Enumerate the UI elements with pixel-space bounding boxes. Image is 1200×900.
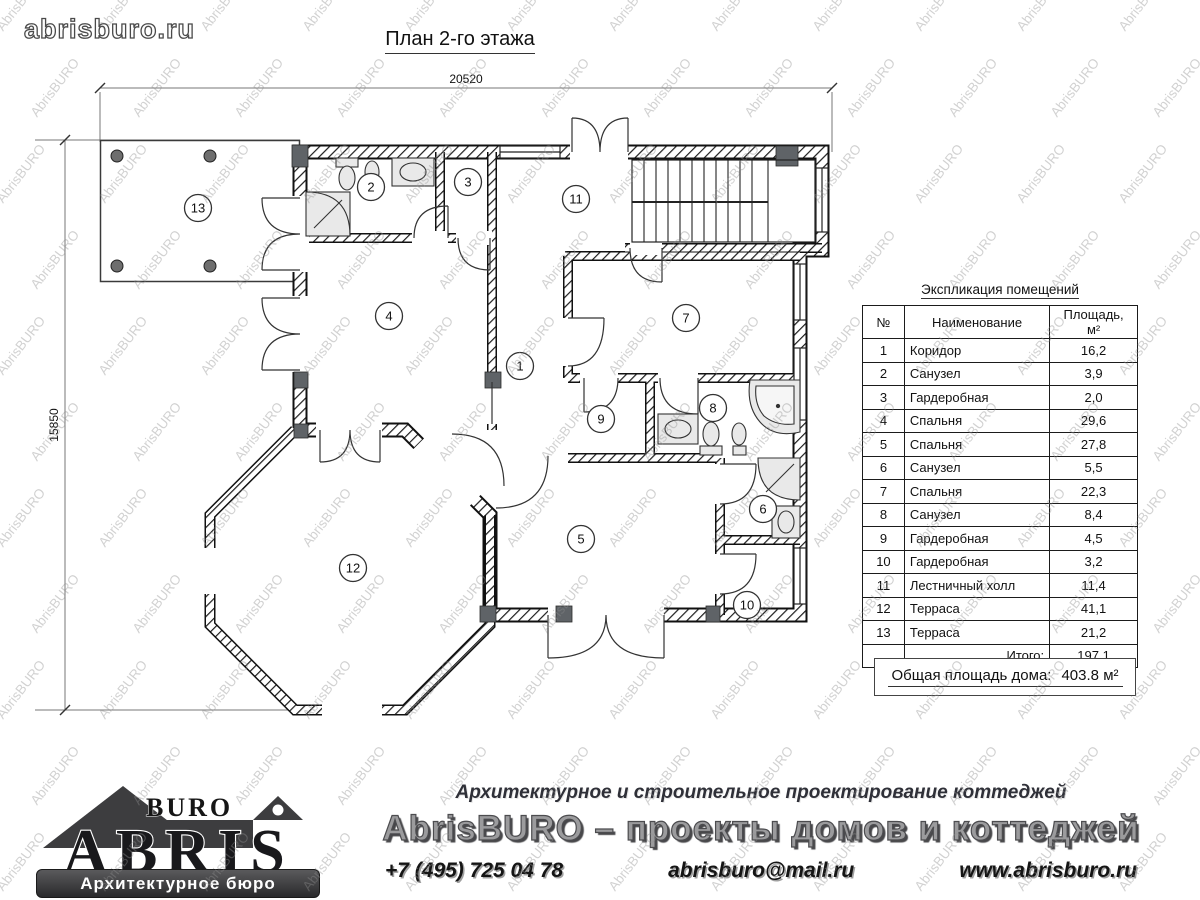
table-row: 5Спальня27,8 — [863, 433, 1138, 457]
shower-icon-room2 — [306, 192, 350, 236]
svg-text:8: 8 — [709, 401, 716, 416]
room-label-6: 6 — [750, 496, 777, 523]
svg-text:3: 3 — [464, 175, 471, 190]
explication-title: Экспликация помещений — [862, 282, 1138, 297]
svg-text:7: 7 — [682, 311, 689, 326]
svg-text:2: 2 — [367, 180, 374, 195]
svg-text:11: 11 — [569, 192, 583, 207]
table-row: 3Гардеробная2,0 — [863, 386, 1138, 410]
page-title: План 2-го этажа — [310, 28, 610, 54]
explication-panel: Экспликация помещений № Наименование Пло… — [862, 282, 1138, 668]
room-label-1: 1 — [507, 353, 534, 380]
col-header-name: Наименование — [904, 306, 1049, 339]
svg-text:5: 5 — [577, 532, 584, 547]
logo-banner: Архитектурное бюро — [36, 869, 320, 898]
room-label-3: 3 — [455, 169, 482, 196]
explication-table: № Наименование Площадь, м² 1Коридор16,22… — [862, 305, 1138, 668]
stairs — [632, 160, 815, 242]
site-logo-text[interactable]: abrisburo.ru — [24, 14, 195, 45]
footer-tagline: Архитектурное и строительное проектирова… — [456, 782, 1067, 804]
room-label-7: 7 — [673, 305, 700, 332]
table-header-row: № Наименование Площадь, м² — [863, 306, 1138, 339]
svg-text:13: 13 — [191, 201, 205, 216]
interior-walls — [300, 152, 822, 615]
room-label-12: 12 — [340, 555, 367, 582]
table-row: 9Гардеробная4,5 — [863, 527, 1138, 551]
col-header-area: Площадь, м² — [1050, 306, 1138, 339]
svg-text:10: 10 — [740, 598, 754, 613]
bidet-icon-room8 — [732, 423, 746, 455]
room-label-11: 11 — [563, 186, 590, 213]
table-row: 4Спальня29,6 — [863, 409, 1138, 433]
svg-text:12: 12 — [346, 561, 360, 576]
table-row: 2Санузел3,9 — [863, 362, 1138, 386]
room-label-4: 4 — [376, 303, 403, 330]
footer-text: Архитектурное и строительное проектирова… — [330, 782, 1192, 883]
shower-icon-room6 — [758, 458, 800, 500]
svg-text:6: 6 — [759, 502, 766, 517]
sink-icon-room8 — [658, 414, 698, 444]
logo-name-text: ABRIS — [63, 818, 293, 876]
footer-website[interactable]: www.abrisburo.ru — [959, 859, 1137, 883]
dimension-height-label: 15850 — [47, 408, 61, 442]
room-label-2: 2 — [358, 174, 385, 201]
table-row: 13Терраса21,2 — [863, 621, 1138, 645]
footer-email[interactable]: abrisburo@mail.ru — [668, 859, 854, 883]
col-header-num: № — [863, 306, 905, 339]
page: abrisburo.ru План 2-го этажа 20520 15850 — [0, 0, 1200, 900]
footer-headline: AbrisBURO – проекты домов и коттеджей — [382, 809, 1139, 849]
company-logo[interactable]: BURO ABRIS Архитектурное бюро — [28, 780, 328, 898]
table-row: 7Спальня22,3 — [863, 480, 1138, 504]
sink-icon-room2 — [392, 158, 434, 186]
toilet-icon-room2 — [336, 158, 358, 190]
room-label-9: 9 — [588, 406, 615, 433]
page-title-text: План 2-го этажа — [385, 28, 534, 54]
table-row: 8Санузел8,4 — [863, 503, 1138, 527]
table-row: 11Лестничный холл11,4 — [863, 574, 1138, 598]
footer-contacts: +7 (495) 725 04 78 abrisburo@mail.ru www… — [330, 859, 1192, 883]
table-row: 12Терраса41,1 — [863, 597, 1138, 621]
bathtub-icon-room8 — [749, 380, 800, 434]
svg-text:4: 4 — [385, 309, 392, 324]
svg-text:9: 9 — [597, 412, 604, 427]
footer-phone[interactable]: +7 (495) 725 04 78 — [385, 859, 563, 883]
exterior-walls — [300, 152, 822, 615]
room-label-10: 10 — [734, 592, 761, 619]
toilet-icon-room8 — [700, 422, 722, 455]
total-area-text: Общая площадь дома:403.8 м² — [888, 667, 1123, 687]
room-label-5: 5 — [568, 526, 595, 553]
dimension-width-label: 20520 — [449, 72, 483, 86]
table-row: 10Гардеробная3,2 — [863, 550, 1138, 574]
table-row: 1Коридор16,2 — [863, 339, 1138, 363]
logo-graphic: BURO ABRIS — [28, 780, 328, 876]
svg-text:1: 1 — [516, 359, 523, 374]
room-label-8: 8 — [700, 395, 727, 422]
table-row: 6Санузел5,5 — [863, 456, 1138, 480]
total-area-box: Общая площадь дома:403.8 м² — [874, 658, 1136, 696]
footer: BURO ABRIS Архитектурное бюро Архитектур… — [0, 778, 1200, 900]
room-label-13: 13 — [185, 195, 212, 222]
